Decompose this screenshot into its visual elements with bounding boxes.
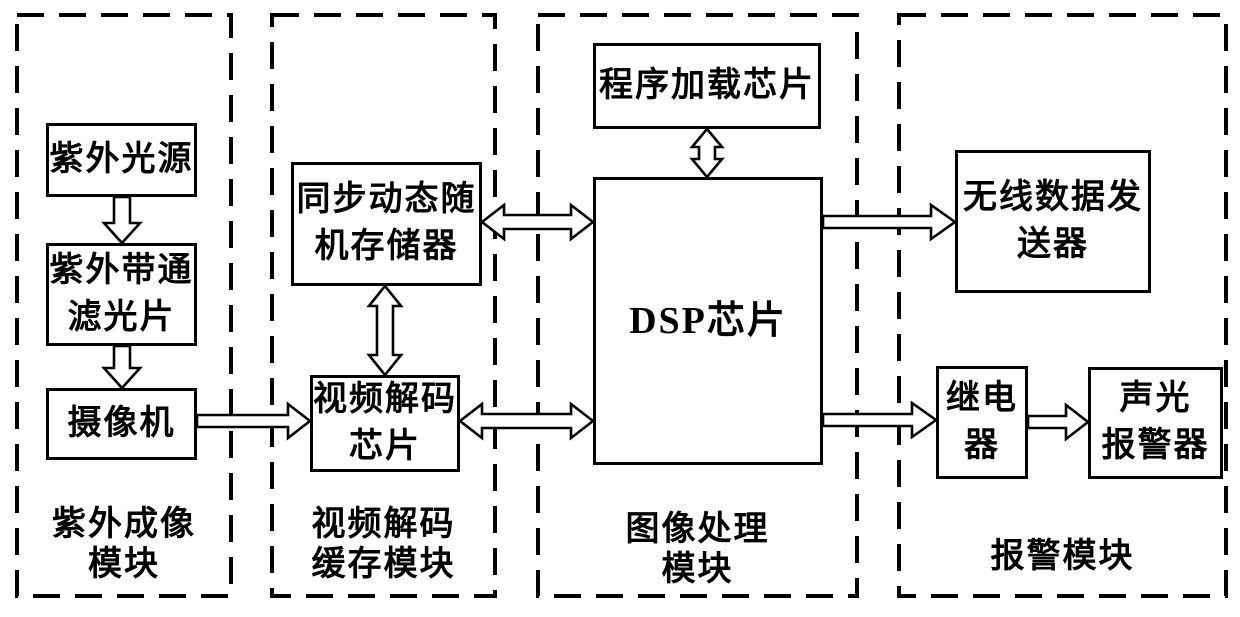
node-label-line: 声光 — [1120, 376, 1192, 423]
module-video-decode-buffer: 视频解码 缓存模块 — [270, 13, 497, 598]
module-label-line: 报警模块 — [897, 537, 1228, 577]
node-label-line: 滤光片 — [68, 295, 176, 342]
module-alarm: 报警模块 — [897, 13, 1228, 598]
node-program-loader-chip: 程序加载芯片 — [593, 43, 821, 129]
module-uv-imaging-label: 紫外成像 模块 — [15, 505, 233, 585]
module-label-line: 模块 — [536, 550, 859, 590]
module-video-decode-buffer-label: 视频解码 缓存模块 — [270, 505, 497, 585]
node-uv-light-source: 紫外光源 — [46, 123, 197, 197]
node-label-line: 视频解码 — [313, 377, 457, 424]
node-label-line: 器 — [964, 423, 1000, 470]
module-label-line: 模块 — [15, 545, 233, 585]
node-label-line: 送器 — [1017, 222, 1089, 269]
node-label-line: 芯片 — [349, 424, 421, 471]
node-sdram: 同步动态随 机存储器 — [291, 162, 482, 286]
node-dsp-chip: DSP芯片 — [593, 177, 823, 465]
node-label-line: 紫外光源 — [50, 137, 194, 184]
module-label-line: 缓存模块 — [270, 545, 497, 585]
block-diagram: 紫外成像 模块 视频解码 缓存模块 图像处理 模块 报警模块 — [0, 0, 1240, 617]
module-image-processing-label: 图像处理 模块 — [536, 510, 859, 590]
node-label-line: 摄像机 — [68, 401, 176, 448]
node-label-line: 同步动态随 — [297, 177, 477, 224]
module-label-line: 图像处理 — [536, 510, 859, 550]
module-label-line: 紫外成像 — [15, 505, 233, 545]
node-label-line: 紫外带通 — [50, 248, 194, 295]
node-label-line: 报警器 — [1102, 423, 1210, 470]
node-label-line: 无线数据发 — [963, 175, 1143, 222]
node-label-line: DSP芯片 — [629, 295, 787, 347]
node-label-line: 机存储器 — [315, 224, 459, 271]
node-wireless-data-transmitter: 无线数据发 送器 — [955, 150, 1151, 293]
node-label-line: 继电 — [946, 376, 1018, 423]
module-alarm-label: 报警模块 — [897, 537, 1228, 577]
node-label-line: 程序加载芯片 — [599, 63, 815, 110]
module-label-line: 视频解码 — [270, 505, 497, 545]
module-alarm-dashed-border — [897, 13, 1228, 598]
node-sound-light-alarm: 声光 报警器 — [1088, 367, 1223, 479]
node-relay: 继电 器 — [936, 366, 1028, 479]
node-camera: 摄像机 — [46, 388, 197, 460]
node-video-decoder-chip: 视频解码 芯片 — [310, 375, 460, 472]
node-uv-bandpass-filter: 紫外带通 滤光片 — [46, 243, 197, 346]
